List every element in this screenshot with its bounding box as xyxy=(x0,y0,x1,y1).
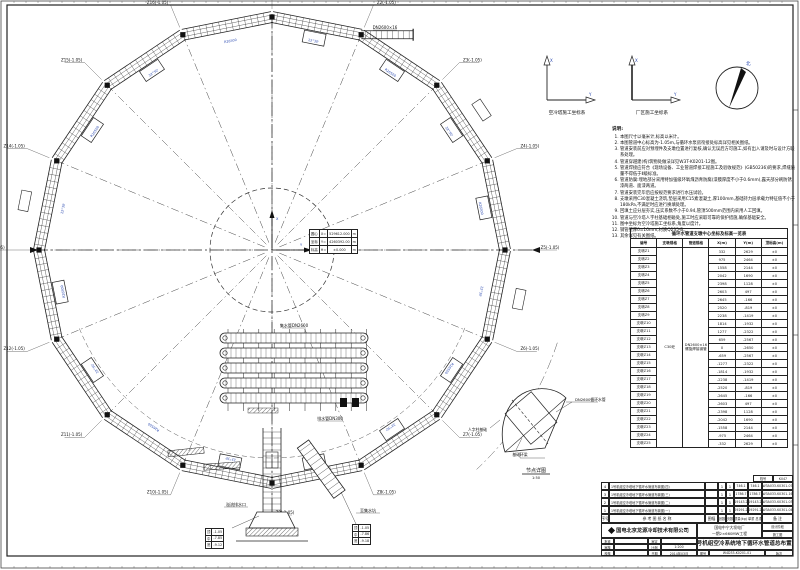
extra-callout-label: 排水管DN300 xyxy=(317,415,343,421)
titleblock-cell: 1786.7 xyxy=(734,490,748,498)
equipment-box xyxy=(380,418,405,440)
table-row: 支墩Z130-2650±0 xyxy=(631,344,788,352)
detail-label: 人字柱基础 xyxy=(468,427,487,432)
pier-coordinate-table: 循环水管道支墩中心坐标及标高一览表编号支墩规格管道规格X(m)Y(m)顶标高(m… xyxy=(630,228,788,448)
note-line: 管道安装前应对预埋件及支墩位置进行复核,确认无误后方可施工,如有出入请及时与设计… xyxy=(620,147,796,159)
project-name-line: 一期2×660MW工程 xyxy=(712,531,747,537)
titleblock-cell: 2014年03月 xyxy=(661,550,697,556)
table-row: 支墩Z523981128±0 xyxy=(631,280,788,288)
ring-callout-label: Z14(-1.05) xyxy=(4,143,26,148)
table-row: 支墩Z15-1277-2322±0 xyxy=(631,360,788,368)
titleblock-cell: 图号 xyxy=(697,550,709,556)
ring-callout-label: Z3(-1.05) xyxy=(463,57,482,62)
titleblock-cell xyxy=(614,550,648,556)
table-row: 支墩Z23-15582144±0 xyxy=(631,424,788,432)
table-row: 支墩Z420421690±0 xyxy=(631,272,788,280)
coordinate-axis-symbol: XY空冷塔施工坐标系 xyxy=(544,56,595,116)
svg-text:X: X xyxy=(550,58,553,63)
table-row: 支墩Z18-2520-819±0 xyxy=(631,384,788,392)
table-row: 支墩Z24-9752464±0 xyxy=(631,432,788,440)
node-detail-drawing: 人字柱基础基础环梁DN2600循环水管节点详图1:50 xyxy=(468,389,606,480)
equipment-box xyxy=(140,59,165,81)
titleblock-cell xyxy=(705,498,718,506)
table-row: 支墩Z14-659-2567±0 xyxy=(631,352,788,360)
note-line: 支墩采用C30混凝土浇筑,垫层采用C15素混凝土,厚100mm,基础持力层承载力… xyxy=(620,197,796,209)
table-row: 圆心X=529612.000m xyxy=(310,230,358,238)
ring-dimension-text: 22°30' xyxy=(60,203,66,215)
titleblock-cell: 图幅 xyxy=(705,514,718,523)
titleblock-cell: K047 xyxy=(773,475,793,482)
svg-text:Y: Y xyxy=(673,92,677,97)
titleblock-cell: 746.1 xyxy=(748,482,762,490)
table-row: 支墩Z21-23981128±0 xyxy=(631,408,788,416)
table-row: 支墩Z17-2238-1419±0 xyxy=(631,376,788,384)
table-row: 支墩Z72645-166±0 xyxy=(631,296,788,304)
equipment-box xyxy=(440,118,462,143)
circle-center-table: 圆心X=529612.000m坐标Y=4260392.00m标高H=±0.000… xyxy=(309,229,358,254)
bundle-pipe xyxy=(220,333,368,343)
table-row: 支墩Z101814-1932±0 xyxy=(631,320,788,328)
titleblock-cell: 日期 xyxy=(648,550,661,556)
outlet-elevation-table-left: 顶-1.05中-7.85底-9.12 xyxy=(205,528,224,549)
titleblock-cell: 1 xyxy=(726,506,734,514)
ref-name: 1号机组空冷塔地下循环水管道布置图(四) xyxy=(609,482,705,490)
svg-text:Y: Y xyxy=(588,92,592,97)
titleblock-cell: 3 xyxy=(601,490,609,498)
table-row: 支墩Z16-1814-1932±0 xyxy=(631,368,788,376)
ring-callout-label: Z16(-1.05) xyxy=(147,0,169,5)
titleblock-cell: 版次 xyxy=(765,550,793,556)
ring-callout-label: Z4(-1.05) xyxy=(520,143,539,148)
outlet-elevation-table-right: 顶-1.05中-7.86底-9.18 xyxy=(352,524,371,545)
company-logo xyxy=(608,527,615,534)
titleblock-cell xyxy=(705,506,718,514)
titleblock-cell: 1 xyxy=(726,498,734,506)
titleblock-cell: 张数 xyxy=(718,514,726,523)
titleblock-cell: 序号 xyxy=(601,514,609,523)
titleblock-cell: 29291.2 xyxy=(734,506,748,514)
titleblock-cell: 档号 xyxy=(753,475,773,482)
ring-callout-label: Z5(-1.05) xyxy=(541,245,560,250)
ring-callout-label: Z7(-1.05) xyxy=(463,432,482,437)
ring-callout-label: Z11(-1.05) xyxy=(61,432,83,437)
bundle-pipe xyxy=(220,348,368,358)
drawing-title: 1号机组空冷系统地下循环水管道总布置图 xyxy=(697,538,793,550)
notes-block: 说明: 本图尺寸以毫米计,标高以米计。本图管道中心标高为-1.05m,与循环水泵… xyxy=(612,127,796,240)
note-line: 管道焊接应符合《现场设备、工业管道焊接工程施工及验收规范》(GB50236)的要… xyxy=(620,166,796,178)
extra-callout-label: 至集水坑 xyxy=(360,507,376,513)
titleblock-cell: 1 xyxy=(726,482,734,490)
axis-caption: 厂区施工坐标系 xyxy=(636,109,669,116)
ref-name: 1号机组空冷塔地下循环水管道布置图(一) xyxy=(609,506,705,514)
titleblock-cell: 页数 xyxy=(726,514,734,523)
equipment-box xyxy=(81,358,103,383)
north-needle xyxy=(729,68,746,108)
titleblock-cell: 备 注 xyxy=(762,514,793,523)
title-block: 档号K04741号机组空冷塔地下循环水管道布置图(四)11746.1746.1W… xyxy=(601,475,793,556)
titleblock-cell: 2 xyxy=(601,498,609,506)
svg-text:Y: Y xyxy=(300,243,303,247)
table-row: 支墩Z1C30砼DN2600×16 螺旋焊接钢管3322629±0 xyxy=(631,248,788,256)
ring-dimension-text: R26500 xyxy=(224,38,237,44)
notes-list: 本图尺寸以毫米计,标高以米计。本图管道中心标高为-1.05m,与循环水泵房衔接处… xyxy=(612,135,796,241)
table-row: 支墩Z25-3322629±0 xyxy=(631,440,788,448)
extra-callout-label: 溢流排水口 xyxy=(226,501,246,507)
titleblock-cell: 29291.2 xyxy=(748,506,762,514)
titleblock-cell: 19143.2 xyxy=(734,498,748,506)
company-cell: 国电北京龙源冷却技术有限公司 xyxy=(601,523,697,538)
titleblock-cell: 19143.2 xyxy=(748,498,762,506)
ring-dimension-text: R26500 xyxy=(147,422,160,432)
bundle-pipe xyxy=(220,363,368,373)
ring-callout-label: Z8(-1.05) xyxy=(377,490,396,495)
table-row: 支墩Z111277-2322±0 xyxy=(631,328,788,336)
company-name: 国电北京龙源冷却技术有限公司 xyxy=(616,527,689,534)
coordinate-axis-symbol: XY厂区施工坐标系 xyxy=(629,56,680,116)
titleblock-cell: 质量(kg) 单重 总重 xyxy=(734,514,762,523)
ring-callout-label: Z10(-1.05) xyxy=(147,490,169,495)
titleblock-cell: 1 xyxy=(718,498,726,506)
titleblock-cell: 1 xyxy=(601,506,609,514)
ref-name: 1号机组空冷塔地下循环水管道布置图(二) xyxy=(609,498,705,506)
bundle-pipe xyxy=(220,378,368,388)
ring-callout-label: Z12(-1.05) xyxy=(4,346,26,351)
ref-name: 1号机组空冷塔地下循环水管道布置图(三) xyxy=(609,490,705,498)
ref-figno: W3A033-K0301-03 xyxy=(762,498,793,506)
titleblock-cell: 4 xyxy=(601,482,609,490)
drawing-number: W4D33-K0201-01 xyxy=(709,550,765,556)
ring-callout-label: Z13(-1.05) xyxy=(0,245,5,250)
svg-text:X: X xyxy=(635,58,638,63)
extra-callout-label: 集水管DN2600 xyxy=(280,322,309,328)
svg-text:1:50: 1:50 xyxy=(532,476,541,480)
table-row: 支墩Z29752464±0 xyxy=(631,256,788,264)
equipment-box-outer xyxy=(512,288,526,310)
project-cell: 国电中宁大坝电厂一期2×660MW工程 xyxy=(697,523,762,538)
notes-title: 说明: xyxy=(612,127,796,134)
detail-label: DN2600循环水管 xyxy=(575,397,606,402)
table-row: 支墩Z19-2645-166±0 xyxy=(631,392,788,400)
ref-header-name: 参 考 图 纸 名 称 xyxy=(609,514,705,523)
ring-callout-label: Z2(-1.05) xyxy=(377,0,396,5)
table-row: 支墩Z82520-819±0 xyxy=(631,304,788,312)
titleblock-cell: 设计阶段 xyxy=(762,523,793,531)
titleblock-cell xyxy=(705,490,718,498)
note-line: 管道防腐:埋地部分采用特加强级环氧煤沥青防腐(漆膜厚度不小于0.6mm),露天部… xyxy=(620,178,796,190)
table-row: 底-9.18 xyxy=(353,538,371,545)
table-row: 支墩Z12659-2567±0 xyxy=(631,336,788,344)
table-row: 标高H=±0.000m xyxy=(310,246,358,254)
detail-caption: 节点详图 xyxy=(526,467,546,474)
ring-callout-label: Z6(-1.05) xyxy=(520,346,539,351)
titleblock-cell: 1 xyxy=(718,490,726,498)
extra-callout-label: DN2600×16 xyxy=(373,25,398,30)
table-row: 支墩Z315582144±0 xyxy=(631,264,788,272)
ring-callout-label: Z15(-1.05) xyxy=(61,57,83,62)
table-row: 支墩Z22-20421690±0 xyxy=(631,416,788,424)
svg-text:X: X xyxy=(276,217,279,221)
north-label: 北 xyxy=(746,60,751,67)
ref-figno: W3A033-K0301-16 xyxy=(762,490,793,498)
ref-figno: W3A033-K0301-04 xyxy=(762,506,793,514)
table-row: 坐标Y=4260392.00m xyxy=(310,238,358,246)
table-row: 支墩Z20-2603497±0 xyxy=(631,400,788,408)
ring-dimension-text: 22°30' xyxy=(478,286,484,298)
titleblock-cell: 1 xyxy=(718,482,726,490)
titleblock-cell: 746.1 xyxy=(734,482,748,490)
titleblock-cell: 施工图 xyxy=(762,531,793,539)
titleblock-cell: 1786.7 xyxy=(748,490,762,498)
table-row: 支墩Z92238-1419±0 xyxy=(631,312,788,320)
table-row: 底-9.12 xyxy=(206,542,224,549)
axis-caption: 空冷塔施工坐标系 xyxy=(549,109,586,116)
titleblock-cell: 1 xyxy=(726,490,734,498)
table-row: 支墩Z62603497±0 xyxy=(631,288,788,296)
ref-figno: W3A033-K0301-07 xyxy=(762,482,793,490)
titleblock-cell: 校核 xyxy=(601,550,614,556)
titleblock-cell xyxy=(705,482,718,490)
equipment-box-outer xyxy=(18,190,32,212)
titleblock-cell: 1 xyxy=(718,506,726,514)
equipment-box-outer xyxy=(472,99,491,121)
